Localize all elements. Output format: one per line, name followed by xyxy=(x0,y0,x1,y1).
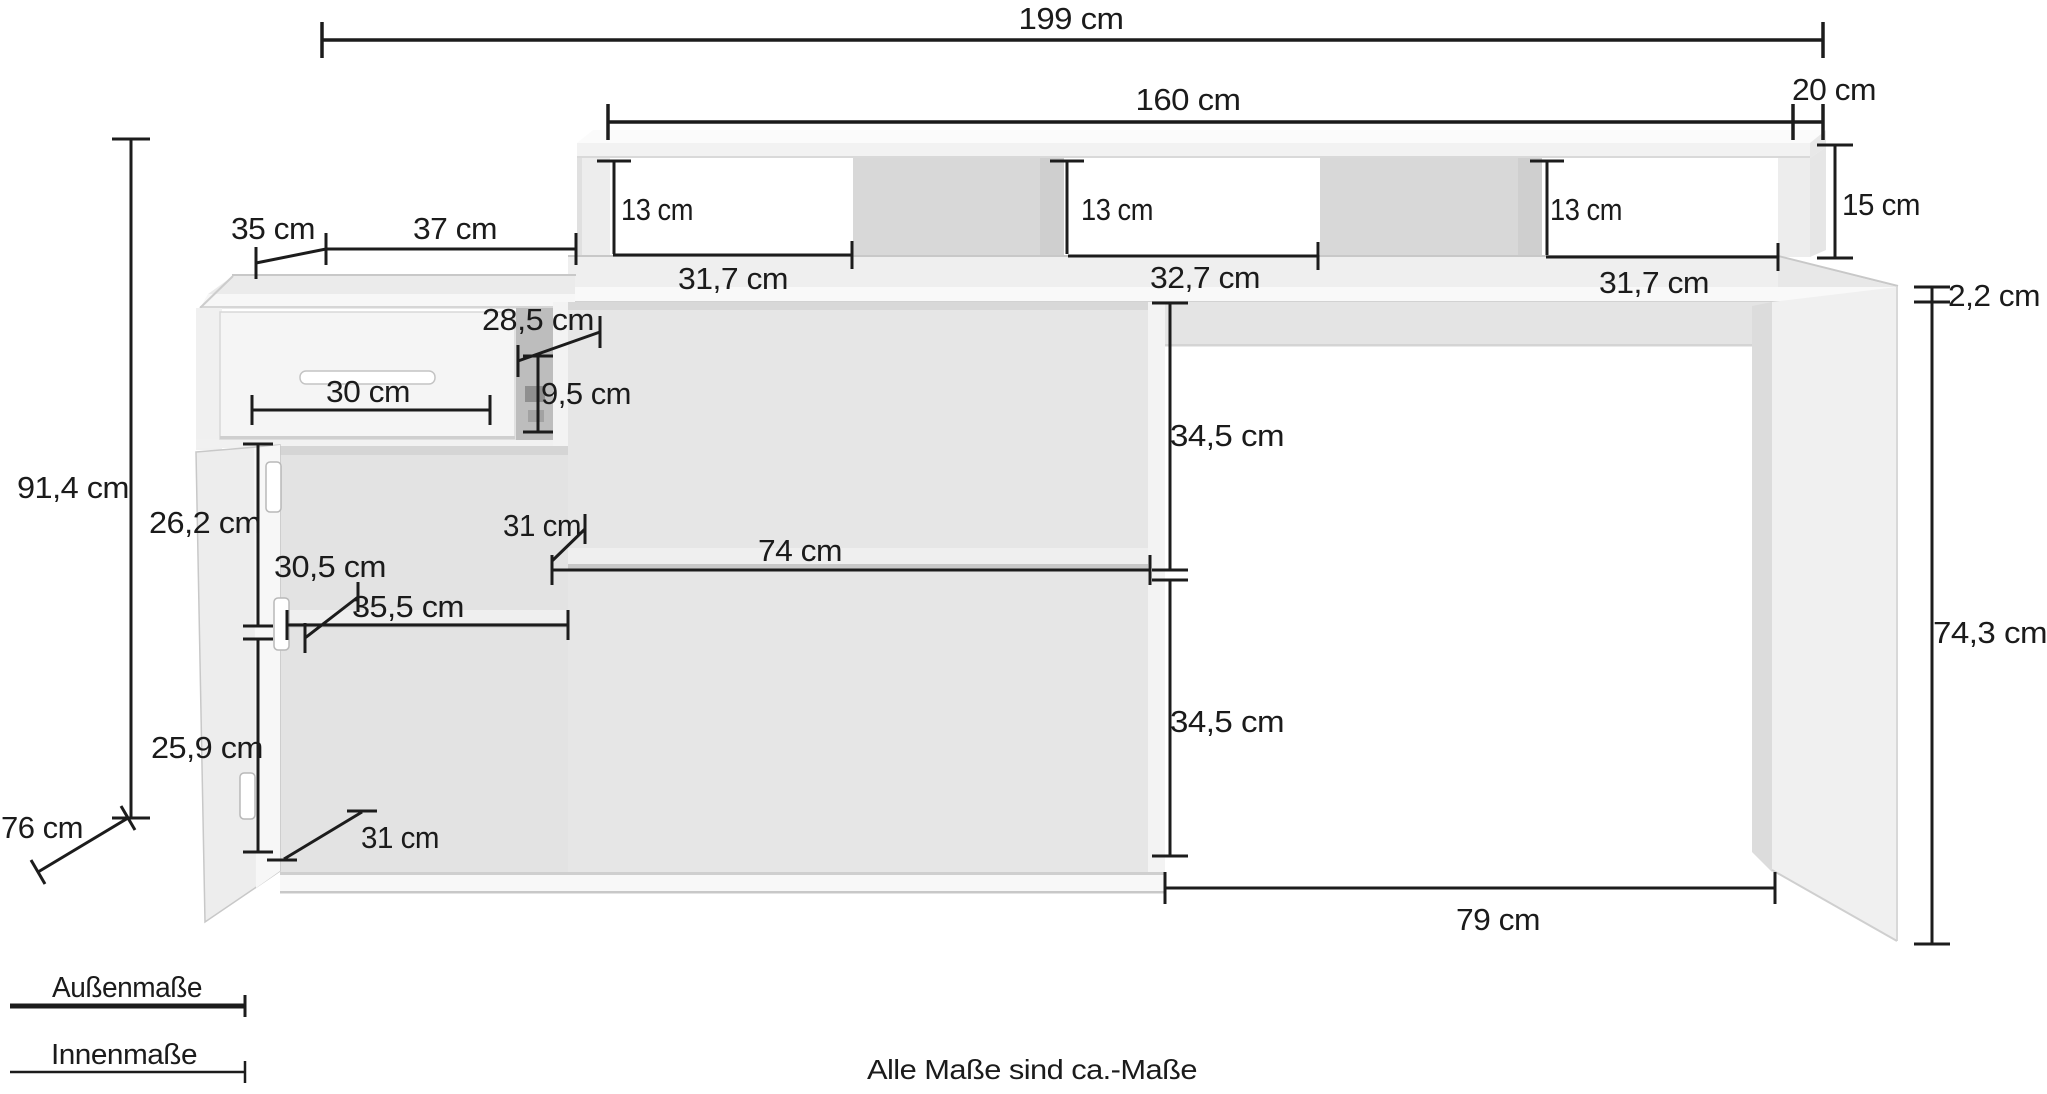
middle-compartment-top-shadow xyxy=(568,302,1148,310)
sideboard-left-stile xyxy=(196,308,222,450)
label-cubby-left-width: 31,7 cm xyxy=(678,261,788,296)
plinth-bottom-edge xyxy=(280,891,1165,894)
furniture xyxy=(196,130,1898,941)
kneehole-apron xyxy=(1165,302,1772,346)
label-riser-height: 15 cm xyxy=(1842,187,1920,222)
right-panel-inner-face xyxy=(1752,302,1772,872)
label-kneehole-lower-height: 34,5 cm xyxy=(1170,704,1284,739)
label-shelf-depth-middle: 31 cm xyxy=(503,508,581,543)
middle-shelf-top xyxy=(568,548,1148,564)
desktop-right-bevel xyxy=(1778,257,1897,287)
sideboard-top-back-edge xyxy=(232,274,576,276)
label-overhang-depth: 28,5 cm xyxy=(482,302,594,337)
label-middle-compartment-width: 74 cm xyxy=(758,533,842,568)
hinge-icon-bottom xyxy=(240,773,255,819)
riser-right-leg xyxy=(1778,158,1810,257)
label-cubby-middle-width: 32,7 cm xyxy=(1150,260,1260,295)
label-kneehole-upper-height: 34,5 cm xyxy=(1170,418,1284,453)
label-cubby-right-width: 31,7 cm xyxy=(1599,265,1709,300)
label-cubby-right-height: 13 cm xyxy=(1550,192,1622,227)
middle-shelf-edge xyxy=(568,564,1148,569)
riser-panel-left xyxy=(853,158,1064,257)
label-door-lower-height: 25,9 cm xyxy=(151,730,263,765)
drawer-runner-icon-2 xyxy=(528,410,544,422)
label-door-upper-height: 26,2 cm xyxy=(149,505,261,540)
riser-left-leg-edge xyxy=(577,158,582,257)
label-riser-depth: 20 cm xyxy=(1792,72,1876,107)
right-panel xyxy=(1772,287,1897,941)
legend-inner-label: Innenmaße xyxy=(51,1039,197,1071)
riser-right-leg-side xyxy=(1810,147,1826,257)
label-shelf-depth-left: 30,5 cm xyxy=(274,549,386,584)
label-riser-width: 160 cm xyxy=(1136,82,1241,117)
middle-compartment-interior xyxy=(568,302,1148,875)
riser-panel-right xyxy=(1320,158,1542,257)
plinth xyxy=(280,875,1165,893)
label-sideboard-top-width: 37 cm xyxy=(413,211,497,246)
footnote-label: Alle Maße sind ca.-Maße xyxy=(867,1054,1197,1085)
drawing-canvas: 199 cm 160 cm 20 cm 35 cm 37 cm 13 cm 13… xyxy=(0,0,2047,1094)
dim-kneehole-width xyxy=(1165,872,1775,904)
drawer-shadow xyxy=(220,436,515,439)
label-sideboard-left-depth: 35 cm xyxy=(231,211,315,246)
kneehole-apron-edge xyxy=(1165,344,1772,347)
left-compartment-top-shadow xyxy=(280,446,568,455)
label-drawer-width: 30 cm xyxy=(326,374,410,409)
label-total-height: 91,4 cm xyxy=(17,470,129,505)
label-desktop-thickness: 2,2 cm xyxy=(1948,278,2040,313)
label-left-shelf-width: 35,5 cm xyxy=(352,589,464,624)
label-cubby-middle-height: 13 cm xyxy=(1081,192,1153,227)
hinge-icon-top xyxy=(266,462,281,512)
label-niche-height: 9,5 cm xyxy=(541,376,631,411)
label-total-width: 199 cm xyxy=(1019,1,1124,36)
label-desk-clearance-height: 74,3 cm xyxy=(1933,615,2047,650)
riser-top-face xyxy=(577,130,1826,143)
divider-panel xyxy=(1148,302,1165,875)
label-bottom-shelf-depth: 31 cm xyxy=(361,820,439,855)
sideboard-top-face xyxy=(208,276,575,294)
legend-outer-label: Außenmaße xyxy=(52,972,202,1004)
riser-front-face xyxy=(577,143,1810,158)
riser-panel-left-shadow xyxy=(1040,158,1064,257)
interior-floor-edge xyxy=(280,872,1165,875)
label-desk-depth: 76 cm xyxy=(1,810,83,845)
dimension-drawing: 199 cm 160 cm 20 cm 35 cm 37 cm 13 cm 13… xyxy=(0,0,2047,1094)
label-cubby-left-height: 13 cm xyxy=(621,192,693,227)
riser-panel-right-shadow xyxy=(1518,158,1542,257)
label-kneehole-width: 79 cm xyxy=(1456,902,1540,937)
